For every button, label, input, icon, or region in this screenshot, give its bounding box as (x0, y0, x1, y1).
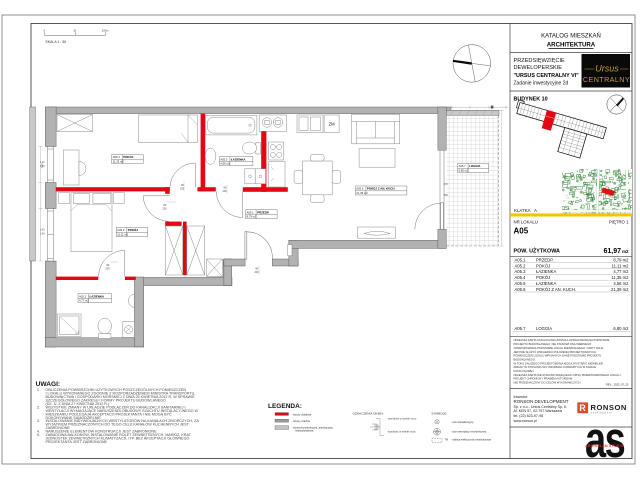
svg-text:A05.7: A05.7 (459, 164, 467, 168)
svg-text:A05.2: A05.2 (117, 228, 125, 232)
svg-text:UWAGI:: UWAGI: (36, 381, 61, 388)
svg-text:1.20: 1.20 (40, 161, 45, 164)
svg-text:BUDOWLANEGO.: BUDOWLANEGO. (514, 358, 537, 362)
svg-text:POKÓJ: POKÓJ (123, 154, 134, 159)
svg-text:5.: 5. (37, 433, 40, 437)
svg-text:A05.4: A05.4 (113, 155, 121, 159)
svg-text:OZNACZENIA OKIEN:: OZNACZENIA OKIEN: (353, 412, 384, 416)
svg-text:ŁAZIENKA: ŁAZIENKA (231, 157, 247, 161)
svg-text:A05.5: A05.5 (515, 281, 527, 286)
svg-text:200m: 200m (102, 28, 109, 32)
svg-text:3.: 3. (37, 419, 40, 423)
svg-text:11,35 m2: 11,35 m2 (113, 160, 125, 164)
svg-text:A05.6: A05.6 (515, 287, 527, 292)
svg-text:A05: A05 (514, 227, 529, 236)
svg-text:1.: 1. (37, 388, 40, 392)
svg-text:ODWZOROWANIA PODSTAWIE LOKALI: ODWZOROWANIA PODSTAWIE LOKALI MIESZKALNE… (514, 346, 604, 350)
svg-text:4,77 m2: 4,77 m2 (613, 269, 629, 274)
svg-text:LOGGIA: LOGGIA (469, 164, 481, 168)
svg-text:POKÓJ: POKÓJ (128, 227, 139, 232)
svg-text:250: 250 (444, 194, 449, 197)
svg-text:szerokość w świetle muru: szerokość w świetle muru (388, 418, 417, 421)
svg-text:1.98: 1.98 (40, 233, 45, 236)
svg-text:POKÓJ: POKÓJ (536, 263, 550, 268)
svg-text:KATALOGOWEJ.: KATALOGOWEJ. (514, 369, 535, 373)
svg-text:PRZEDSIĘWZIĘCIE: PRZEDSIĘWZIĘCIE (514, 58, 566, 64)
svg-text:as: as (585, 413, 625, 468)
svg-text:6,80 m2: 6,80 m2 (459, 168, 469, 172)
svg-text:TM: TM (445, 439, 449, 442)
svg-text:2.: 2. (37, 405, 40, 409)
svg-text:Zadanie inwestycyjne 2d: Zadanie inwestycyjne 2d (514, 81, 569, 87)
svg-text:- ściany szachtu: - ściany szachtu (292, 419, 311, 423)
svg-text:LOGGIA: LOGGIA (536, 326, 552, 331)
svg-text:A05.3: A05.3 (515, 269, 527, 274)
svg-text:8,79 m2: 8,79 m2 (247, 215, 257, 219)
svg-text:tel. (22) 823-97-98: tel. (22) 823-97-98 (514, 414, 544, 418)
svg-text:REV_ 2025_07_25: REV_ 2025_07_25 (606, 382, 629, 386)
svg-text:- tablica elektryczna mieszkan: - tablica elektryczna mieszkaniowa (451, 438, 491, 442)
svg-text:POW. UŻYTKOWA: POW. UŻYTKOWA (514, 248, 561, 255)
svg-text:www.ronson.pl: www.ronson.pl (514, 419, 538, 423)
svg-text:11,35 m2: 11,35 m2 (611, 275, 629, 280)
svg-text:102: 102 (374, 428, 379, 431)
svg-text:200: 200 (254, 271, 259, 274)
svg-text:PRZEDP.: PRZEDP. (257, 210, 269, 214)
svg-text:A05.1: A05.1 (247, 210, 255, 214)
svg-text:A05.2: A05.2 (515, 263, 527, 268)
svg-text:POMIESZCZEŃ LOKALU WPISANYCH D: POMIESZCZEŃ LOKALU WPISANYCH DANE PODSTA… (514, 354, 602, 358)
svg-text:- pion wentylacji mechanicznej: - pion wentylacji mechanicznej (451, 430, 486, 434)
svg-text:PIĘTRO 1: PIĘTRO 1 (609, 220, 629, 225)
svg-text:PRZEDP.: PRZEDP. (536, 257, 554, 262)
svg-text:POKÓJ Z AN. KUCH.: POKÓJ Z AN. KUCH. (367, 186, 396, 191)
svg-text:PROJEKTANTA JEST ZABRONIONE: PROJEKTANTA JEST ZABRONIONE (46, 440, 108, 444)
svg-text:21,39 m2: 21,39 m2 (611, 287, 629, 292)
svg-text:21,39 m2: 21,39 m2 (356, 191, 368, 195)
svg-text:KLATKA: KLATKA (514, 208, 531, 213)
svg-text:1.98: 1.98 (40, 165, 45, 168)
svg-text:POKÓJ: POKÓJ (536, 275, 550, 280)
svg-text:PROJEKT CHRONIONY PRAWEM AUTOR: PROJEKT CHRONIONY PRAWEM AUTORSKIM. (514, 377, 574, 381)
svg-text:- ściany działowe: - ściany działowe (292, 412, 312, 416)
svg-text:PROJEKTU BUDOWLANEGO, NIE STAN: PROJEKTU BUDOWLANEGO, NIE STANOWI ONA WI… (514, 342, 592, 346)
svg-text:A05.6: A05.6 (356, 187, 364, 191)
svg-text:ŁAZIENKA: ŁAZIENKA (536, 269, 556, 274)
svg-text:ŁAZIENKA: ŁAZIENKA (536, 281, 556, 286)
svg-text:11,11 m2: 11,11 m2 (612, 263, 630, 268)
svg-text:ŁAZIENKA: ŁAZIENKA (90, 294, 106, 298)
svg-text:Inwestor:: Inwestor: (514, 395, 529, 399)
svg-text:Al. KEN 57, 02-797 Warszawa: Al. KEN 57, 02-797 Warszawa (514, 409, 562, 413)
svg-text:4,77 m2: 4,77 m2 (79, 299, 89, 303)
svg-text:Ursus: Ursus (595, 64, 619, 74)
svg-text:4,56 m2: 4,56 m2 (220, 162, 230, 166)
svg-text:R: R (579, 403, 586, 413)
svg-text:A05.7: A05.7 (515, 326, 527, 331)
svg-text:KATALOG MIESZKAŃ: KATALOG MIESZKAŃ (541, 33, 601, 40)
svg-text:NR LOKALU: NR LOKALU (514, 220, 538, 225)
svg-text:270: 270 (444, 183, 449, 186)
svg-text:"URSUS CENTRALNY VI": "URSUS CENTRALNY VI" (514, 73, 580, 79)
svg-text:11,11 m2: 11,11 m2 (117, 232, 128, 236)
svg-text:1.60: 1.60 (40, 229, 45, 232)
svg-text:międzylokalowa: międzylokalowa (295, 429, 314, 433)
svg-text:200: 200 (223, 190, 228, 193)
svg-text:6,80 m2: 6,80 m2 (613, 326, 629, 331)
svg-text:A05.4: A05.4 (515, 275, 527, 280)
svg-text:POKÓJ Z AN. KUCH.: POKÓJ Z AN. KUCH. (536, 287, 576, 292)
svg-text:wysokość w świetle muru: wysokość w świetle muru (388, 430, 417, 433)
svg-text:A05.5: A05.5 (220, 157, 228, 161)
svg-text:SYMBOLE:: SYMBOLE: (431, 412, 447, 416)
svg-text:200: 200 (106, 268, 111, 271)
svg-text:RONSON DEVELOPMENT: RONSON DEVELOPMENT (514, 399, 569, 404)
svg-text:CENTRALNY: CENTRALNY (583, 75, 630, 84)
svg-text:8,79 m2: 8,79 m2 (613, 257, 629, 262)
svg-text:4,56 m2: 4,56 m2 (613, 281, 629, 286)
svg-text:LEGENDA:: LEGENDA: (268, 403, 302, 410)
svg-text:- pion kanalizacyjny: - pion kanalizacyjny (451, 420, 474, 424)
svg-text:m2: m2 (622, 249, 629, 254)
svg-text:ARCHIPLAN STUDIO: ARCHIPLAN STUDIO (585, 444, 624, 448)
svg-text:DEWELOPERSKIE: DEWELOPERSKIE (514, 65, 563, 71)
svg-text:ZM: ZM (329, 122, 336, 127)
svg-text:A05.1: A05.1 (515, 257, 527, 262)
svg-text:ARCHITEKTURA: ARCHITEKTURA (547, 42, 596, 49)
svg-text:A05.3: A05.3 (79, 294, 87, 298)
svg-text:SKALA 1 : 50: SKALA 1 : 50 (45, 40, 66, 44)
svg-text:200: 200 (163, 208, 168, 211)
svg-text:ZMIANY W STOSUNKU DO INFORMACJ: ZMIANY W STOSUNKU DO INFORMACJI ZAWARTYC… (514, 365, 597, 369)
svg-text:61,97: 61,97 (603, 248, 621, 255)
svg-text:A: A (534, 208, 537, 213)
svg-text:NINIEJSZA KARTA KATALOGOWA ZOS: NINIEJSZA KARTA KATALOGOWA ZOSTAŁA OPRAC… (514, 338, 610, 342)
svg-text:10: 10 (73, 28, 76, 32)
svg-text:Sp. z o.o.- Ursus Centralny Sp: Sp. z o.o.- Ursus Centralny Sp. K. (514, 405, 568, 409)
